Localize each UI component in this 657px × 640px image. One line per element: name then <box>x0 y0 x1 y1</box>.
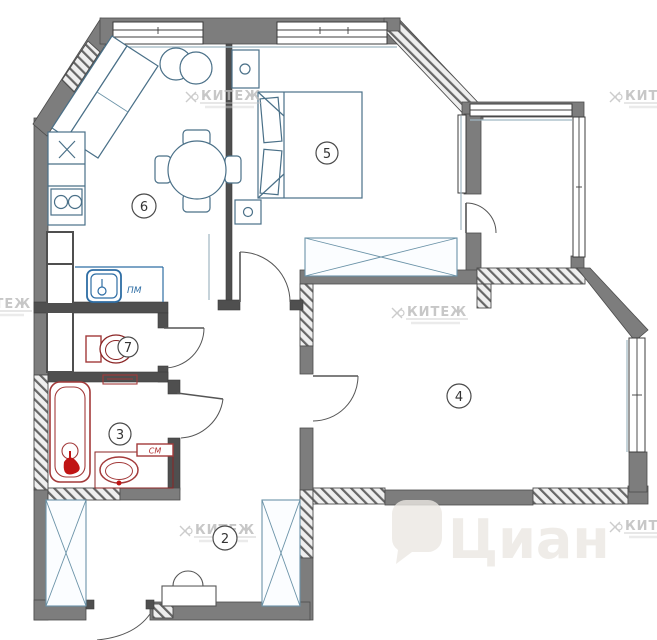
svg-text:7: 7 <box>124 341 132 356</box>
floor-plan-svg: КИТЕЖ <box>0 0 657 640</box>
hall-living-wall-3 <box>300 428 313 490</box>
left-wall-hatched <box>34 375 48 490</box>
kitchen-counter <box>48 132 85 225</box>
room-number-toilet: 7 <box>118 337 138 357</box>
kitezh-watermark-left <box>0 297 32 315</box>
balcony-partition-upper <box>464 114 481 194</box>
bath-right-wall-top <box>168 380 180 394</box>
nightstand-top <box>232 50 259 88</box>
balcony-door-arc <box>466 203 496 233</box>
toilet-right-wall-top <box>158 313 168 328</box>
balcony-partition-lower <box>466 233 481 272</box>
hall-top-wall-solid <box>120 488 180 500</box>
room-number-bedroom: 5 <box>316 142 338 164</box>
bedroom-door-arc <box>240 252 290 302</box>
toilet-door-arc <box>164 328 204 368</box>
room-number-hall: 2 <box>213 526 237 550</box>
hall-top-wall-hatch <box>48 488 120 500</box>
hallway <box>46 500 300 606</box>
bedroom-window <box>277 22 387 44</box>
living-ne-diagonal <box>577 268 648 341</box>
floor-plan: КИТЕЖ <box>0 0 657 640</box>
bench <box>162 586 216 606</box>
vent-shaft-3 <box>47 312 73 372</box>
kitezh-watermark-right-bottom <box>610 519 657 537</box>
living-right-pier <box>629 452 647 492</box>
bedroom-door-jamb-left <box>218 300 240 310</box>
kitezh-watermark-top <box>186 89 262 107</box>
room-number-living: 4 <box>447 384 471 408</box>
bath-door-arc <box>181 399 223 438</box>
cian-watermark-text: Циан <box>448 508 610 571</box>
hall-living-wall-4 <box>300 490 313 558</box>
bedroom-balcony-window <box>458 115 466 193</box>
windows <box>104 22 645 452</box>
cian-icon <box>392 500 442 564</box>
toilet-tank <box>86 336 101 362</box>
living-top-wall-hatched <box>477 268 585 284</box>
chair-right <box>225 156 241 183</box>
living-top-pier <box>477 284 491 308</box>
living-bottom-wall-hatch-r <box>533 488 628 504</box>
hall-living-wall-2 <box>300 346 313 374</box>
label-dishwasher: ПМ <box>127 286 142 296</box>
entrance-jamb-left <box>86 600 94 609</box>
svg-text:3: 3 <box>116 428 124 443</box>
living-door-arc <box>313 376 358 421</box>
bedroom-door-jamb-right <box>290 300 303 310</box>
label-washing-machine: СМ <box>149 447 162 456</box>
room-number-bathroom: 3 <box>109 423 131 445</box>
svg-text:6: 6 <box>140 200 148 215</box>
svg-text:2: 2 <box>221 532 229 547</box>
dining-table <box>168 141 226 199</box>
svg-text:5: 5 <box>323 147 331 162</box>
left-wall-upper <box>34 118 48 375</box>
hall-living-wall-1 <box>300 284 313 346</box>
entrance-jamb-right <box>146 600 154 609</box>
bench-back <box>173 571 203 586</box>
cian-watermark: Циан <box>392 500 610 571</box>
kitezh-watermark-center <box>392 305 468 323</box>
living-bottom-wall-hatch-l <box>313 488 385 504</box>
vent-shaft-2 <box>47 264 73 304</box>
bath-door-leaf <box>177 393 223 399</box>
svg-text:4: 4 <box>455 390 463 405</box>
room-number-kitchen: 6 <box>132 194 156 218</box>
kitchen-sink <box>87 270 121 302</box>
pillow-2 <box>260 149 282 194</box>
basin-faucet-icon <box>117 481 122 486</box>
side-table-circle-2 <box>180 52 212 84</box>
kitezh-watermark-right-top <box>610 89 657 107</box>
bedroom <box>232 50 457 276</box>
entrance-door-swing <box>97 614 150 640</box>
nightstand-bottom <box>235 200 261 224</box>
vent-shaft-1 <box>47 232 73 264</box>
toilet-bath-divider <box>48 372 168 382</box>
